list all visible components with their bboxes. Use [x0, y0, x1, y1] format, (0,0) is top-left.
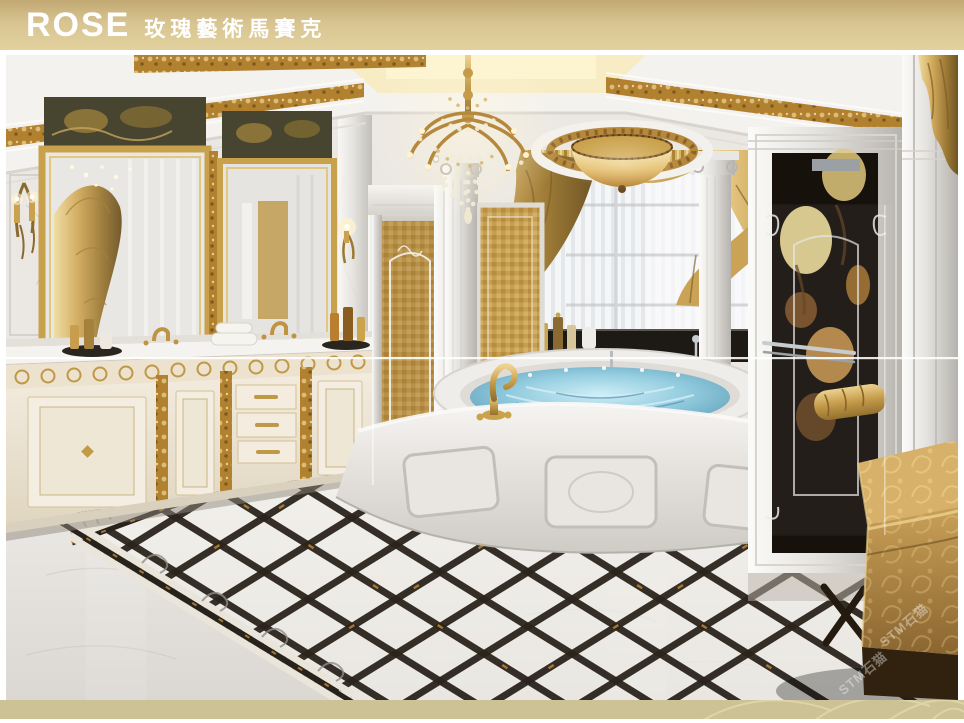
right-wall-pilasters — [902, 55, 958, 455]
brand-name-chinese: 玫瑰藝術馬賽克 — [144, 7, 326, 43]
brand-header: ROSE 玫瑰藝術馬賽克 — [0, 0, 964, 50]
bathroom-photo: STM石猫 STM石猫 STM石猫 — [6, 55, 958, 700]
footer-band — [0, 700, 964, 719]
vanity-wall — [10, 97, 356, 353]
cabinet-door-left — [28, 397, 146, 507]
brand-logo: ROSE — [26, 0, 130, 50]
vanity-mirror-left — [42, 149, 208, 349]
horizontal-divider-line — [6, 357, 958, 359]
cabinet-drawers — [236, 385, 296, 463]
shower-fixture — [812, 159, 860, 171]
rolled-towels — [211, 323, 257, 345]
footer-ornament — [0, 700, 964, 719]
cabinet-door-mid — [176, 391, 214, 495]
gold-pilaster-strip — [209, 151, 218, 349]
